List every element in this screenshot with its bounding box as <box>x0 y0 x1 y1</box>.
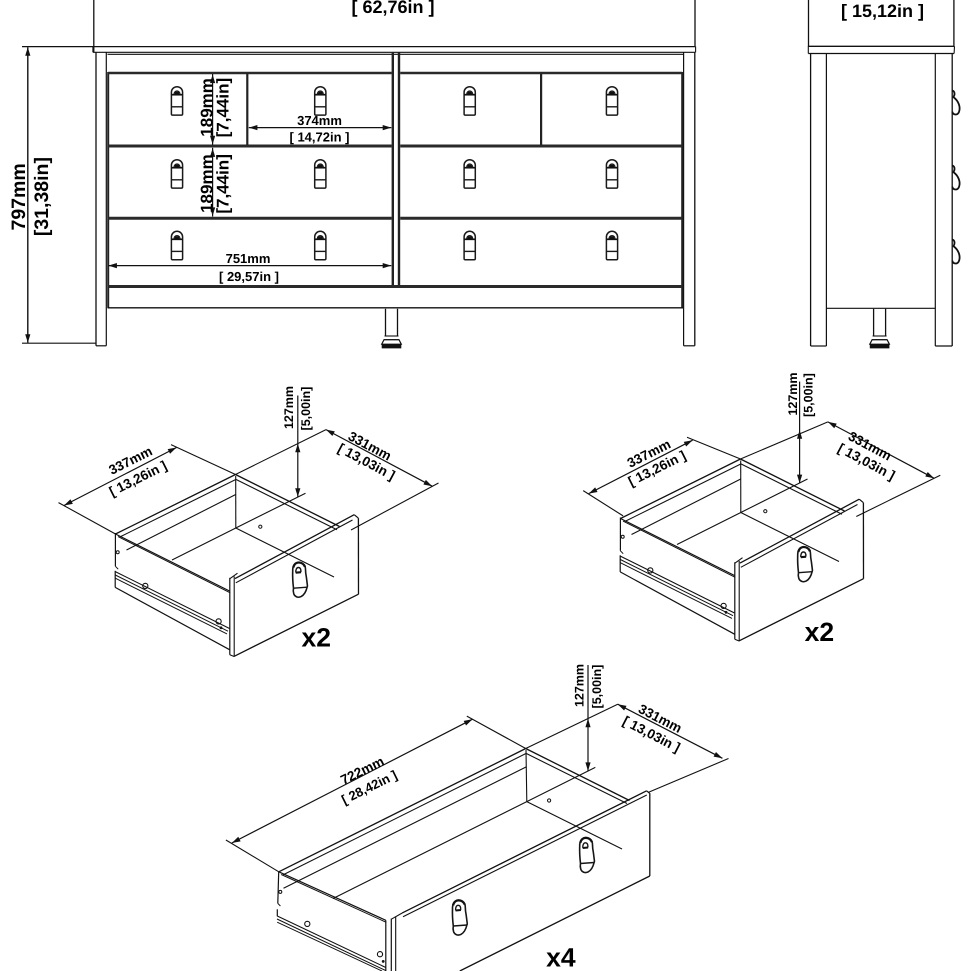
svg-text:x2: x2 <box>302 623 331 653</box>
svg-text:[7,44in]: [7,44in] <box>214 154 233 214</box>
svg-text:x2: x2 <box>805 617 834 647</box>
svg-text:374mm: 374mm <box>297 113 342 128</box>
svg-text:[ 62,76in ]: [ 62,76in ] <box>351 0 434 17</box>
svg-text:127mm: 127mm <box>786 372 800 415</box>
svg-text:127mm: 127mm <box>282 386 296 429</box>
svg-text:[5,00in]: [5,00in] <box>801 373 815 417</box>
svg-text:797mm: 797mm <box>8 163 30 230</box>
svg-text:[ 29,57in ]: [ 29,57in ] <box>219 269 279 284</box>
svg-text:[7,44in]: [7,44in] <box>214 78 233 138</box>
svg-text:[ 15,12in ]: [ 15,12in ] <box>841 1 924 21</box>
svg-text:127mm: 127mm <box>572 664 586 707</box>
svg-text:x4: x4 <box>546 943 576 971</box>
svg-text:751mm: 751mm <box>226 251 271 266</box>
svg-text:[5,00in]: [5,00in] <box>299 387 313 431</box>
svg-text:[ 14,72in ]: [ 14,72in ] <box>290 129 350 144</box>
svg-text:[31,38in]: [31,38in] <box>31 157 53 236</box>
svg-text:[5,00in]: [5,00in] <box>590 665 604 709</box>
